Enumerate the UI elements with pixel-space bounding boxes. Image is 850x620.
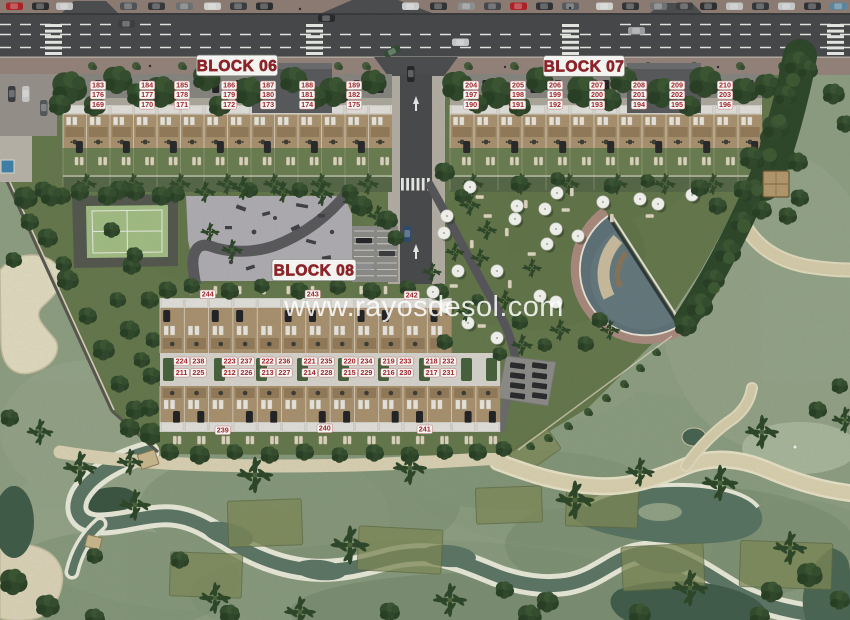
svg-text:www.rayosdesol.com: www.rayosdesol.com: [283, 291, 564, 323]
